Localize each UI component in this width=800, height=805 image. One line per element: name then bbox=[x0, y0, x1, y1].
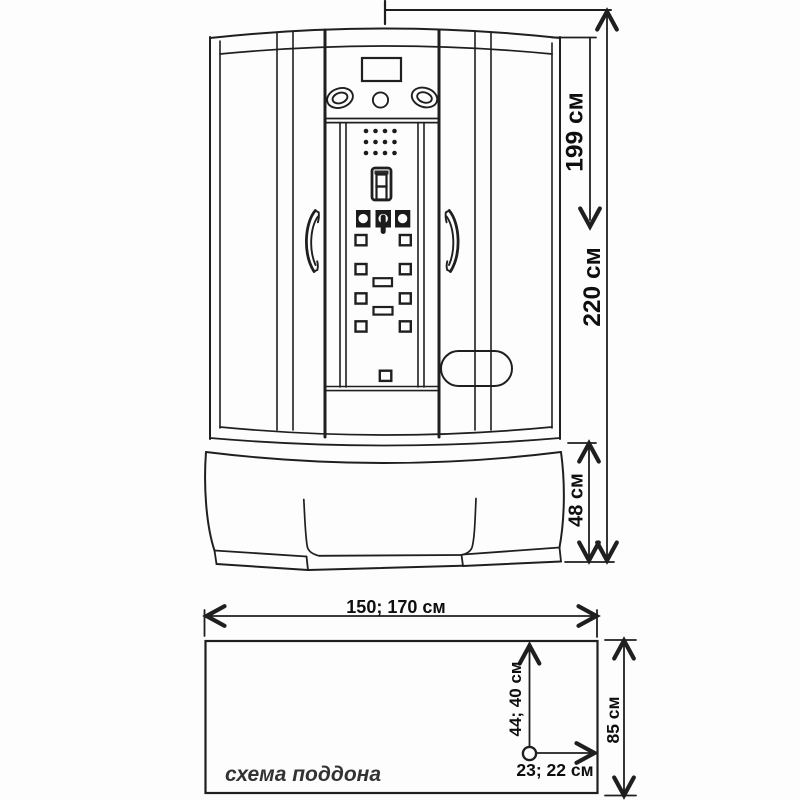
svg-text:схема поддона: схема поддона bbox=[225, 763, 381, 786]
svg-text:199 см: 199 см bbox=[561, 92, 588, 171]
svg-text:85 см: 85 см bbox=[603, 696, 623, 743]
svg-text:220 см: 220 см bbox=[579, 247, 606, 326]
svg-text:23; 22 см: 23; 22 см bbox=[516, 760, 593, 780]
svg-text:150; 170 см: 150; 170 см bbox=[346, 597, 445, 617]
svg-text:48 см: 48 см bbox=[565, 473, 587, 527]
svg-text:44; 40 см: 44; 40 см bbox=[506, 662, 525, 737]
